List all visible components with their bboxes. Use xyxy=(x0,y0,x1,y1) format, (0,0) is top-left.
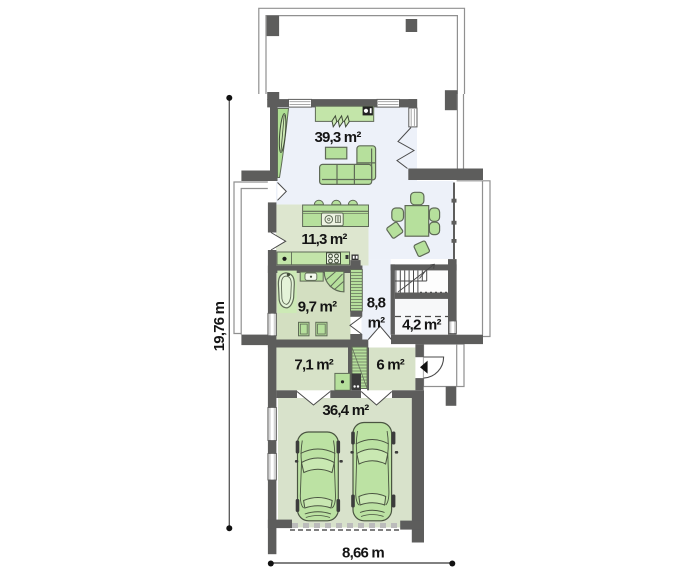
svg-text:7,1 m²: 7,1 m² xyxy=(294,356,333,373)
svg-text:m²: m² xyxy=(368,315,386,332)
svg-text:19,76 m: 19,76 m xyxy=(211,301,228,351)
svg-text:6 m²: 6 m² xyxy=(376,356,404,373)
svg-text:36,4 m²: 36,4 m² xyxy=(322,402,369,419)
svg-text:4,2 m²: 4,2 m² xyxy=(402,317,441,334)
svg-text:39,3 m²: 39,3 m² xyxy=(314,129,361,146)
svg-text:8,66 m: 8,66 m xyxy=(342,545,384,562)
svg-text:8,8: 8,8 xyxy=(367,295,386,312)
svg-text:9,7 m²: 9,7 m² xyxy=(298,299,337,316)
svg-text:11,3 m²: 11,3 m² xyxy=(301,231,347,248)
